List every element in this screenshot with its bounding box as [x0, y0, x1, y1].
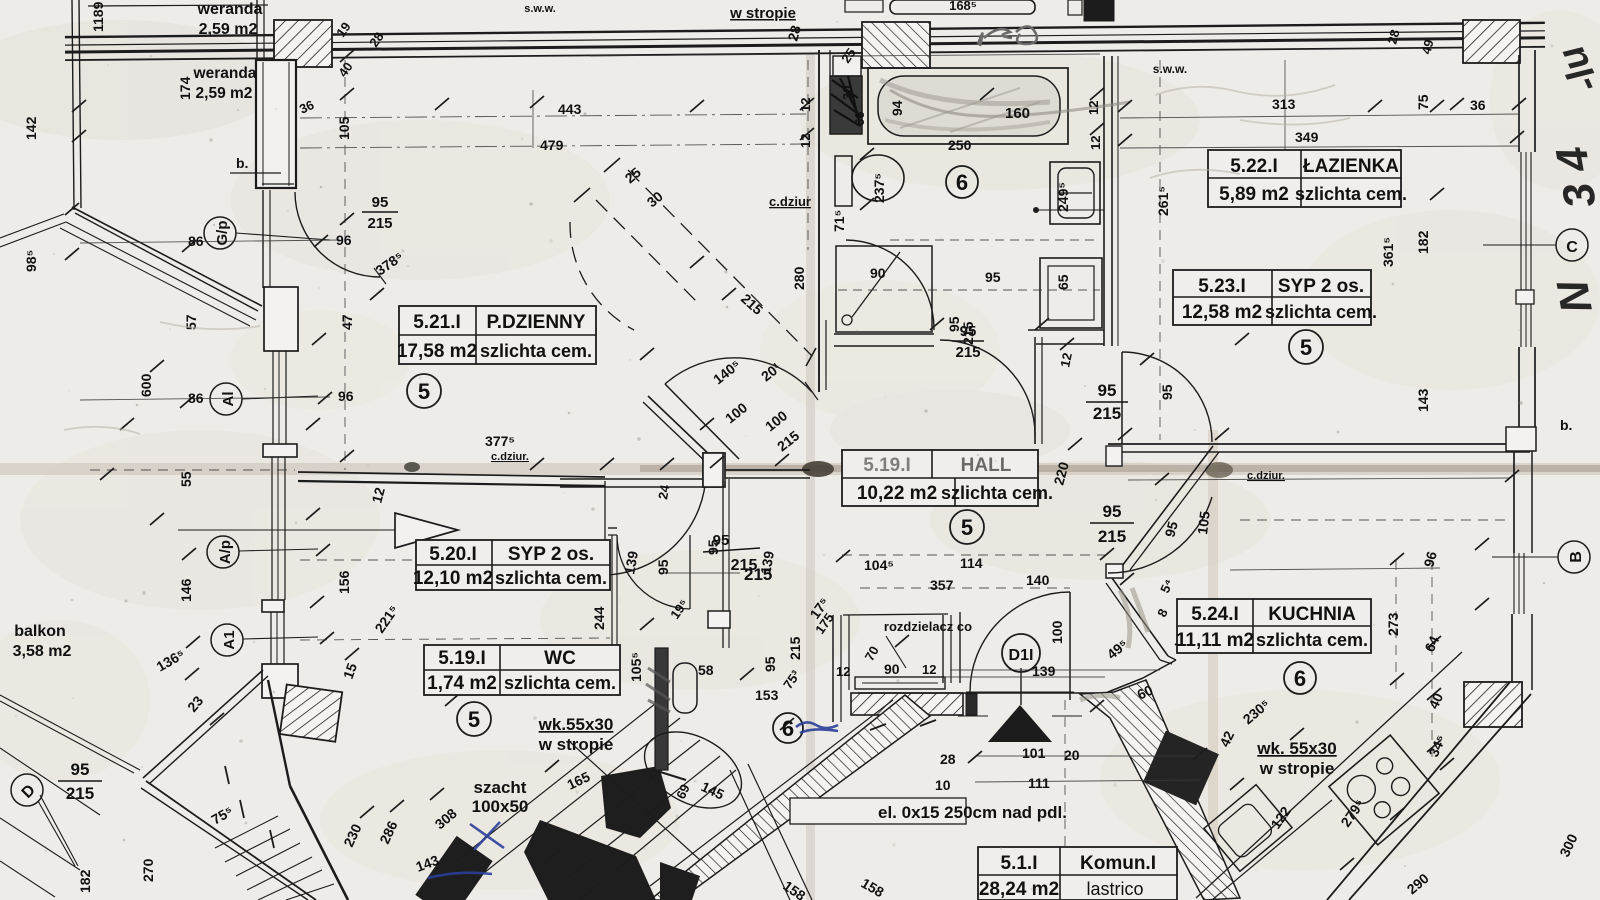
svg-text:5: 5 [468, 707, 480, 732]
svg-text:357: 357 [930, 577, 954, 593]
svg-text:c.dziur: c.dziur [769, 194, 811, 209]
svg-text:2,59 m2: 2,59 m2 [199, 21, 258, 38]
svg-text:140: 140 [1026, 572, 1050, 588]
svg-text:17,58 m2: 17,58 m2 [397, 341, 477, 362]
svg-text:95: 95 [1103, 502, 1122, 521]
svg-text:HALL: HALL [961, 455, 1012, 476]
svg-text:5,89 m2: 5,89 m2 [1219, 184, 1289, 205]
svg-text:600: 600 [138, 373, 154, 397]
svg-text:28: 28 [940, 751, 956, 767]
svg-text:168⁵: 168⁵ [949, 0, 977, 13]
svg-text:12: 12 [798, 134, 813, 148]
svg-text:249⁵: 249⁵ [1055, 182, 1071, 212]
svg-text:66: 66 [852, 112, 867, 126]
svg-text:B: B [1568, 551, 1585, 563]
svg-text:95: 95 [655, 559, 671, 575]
svg-text:139: 139 [1032, 663, 1056, 679]
svg-text:114: 114 [960, 555, 983, 571]
svg-text:96: 96 [336, 232, 352, 248]
svg-text:12,10 m2: 12,10 m2 [413, 568, 493, 589]
svg-text:270: 270 [140, 858, 156, 882]
svg-text:55: 55 [178, 471, 194, 487]
svg-text:weranda: weranda [197, 1, 263, 18]
svg-text:95: 95 [960, 323, 977, 340]
svg-text:s.w.w.: s.w.w. [524, 3, 556, 15]
svg-text:479: 479 [540, 137, 564, 153]
svg-text:20: 20 [1064, 747, 1080, 763]
svg-text:146: 146 [178, 578, 194, 602]
svg-text:5.19.I: 5.19.I [438, 648, 486, 669]
svg-text:G/p: G/p [214, 221, 231, 246]
svg-text:104⁵: 104⁵ [864, 557, 894, 573]
svg-text:105: 105 [336, 116, 352, 140]
svg-text:182: 182 [77, 869, 93, 893]
svg-text:11,11 m2: 11,11 m2 [1176, 630, 1254, 651]
svg-text:el. 0x15 250cm nad pdl.: el. 0x15 250cm nad pdl. [878, 803, 1067, 822]
svg-text:215: 215 [1093, 404, 1121, 423]
svg-text:361⁵: 361⁵ [1380, 237, 1396, 267]
svg-text:30: 30 [840, 86, 855, 100]
svg-text:215: 215 [1098, 527, 1126, 546]
svg-text:D1I: D1I [1009, 647, 1034, 664]
svg-text:Komun.I: Komun.I [1080, 853, 1156, 874]
svg-text:95: 95 [372, 194, 389, 211]
svg-text:250: 250 [948, 137, 972, 153]
svg-text:szlichta cem.: szlichta cem. [941, 483, 1053, 503]
svg-text:12: 12 [1086, 101, 1101, 115]
svg-text:wk.55x30: wk.55x30 [538, 715, 614, 734]
svg-text:Al: Al [220, 392, 237, 407]
svg-text:261⁵: 261⁵ [1155, 186, 1171, 216]
svg-text:349: 349 [1295, 129, 1319, 145]
svg-text:111: 111 [1028, 775, 1050, 791]
svg-text:5.21.I: 5.21.I [413, 312, 461, 333]
svg-text:142: 142 [23, 116, 39, 140]
svg-text:313: 313 [1272, 96, 1296, 112]
svg-text:12: 12 [836, 664, 850, 679]
svg-text:12: 12 [1088, 136, 1103, 150]
svg-text:100x50: 100x50 [472, 797, 529, 816]
svg-text:3,58 m2: 3,58 m2 [13, 643, 72, 660]
svg-text:174: 174 [177, 76, 193, 100]
svg-text:10,22 m2: 10,22 m2 [857, 483, 937, 504]
svg-text:98⁵: 98⁵ [23, 250, 39, 272]
svg-text:96: 96 [338, 388, 354, 404]
svg-text:153: 153 [755, 687, 779, 703]
svg-text:szlichta cem.: szlichta cem. [1256, 630, 1368, 650]
svg-text:s.w.w.: s.w.w. [1153, 62, 1187, 76]
svg-text:weranda: weranda [193, 65, 257, 82]
svg-text:156: 156 [336, 570, 352, 594]
svg-text:5: 5 [1300, 335, 1312, 360]
svg-text:C: C [1566, 239, 1578, 256]
svg-text:5: 5 [961, 515, 973, 540]
svg-text:95: 95 [985, 269, 1001, 285]
svg-text:szacht: szacht [474, 778, 527, 797]
svg-text:101: 101 [1022, 745, 1046, 761]
svg-text:szlichta cem.: szlichta cem. [495, 568, 607, 588]
svg-text:6: 6 [1294, 666, 1306, 691]
svg-text:143: 143 [1415, 388, 1431, 412]
svg-text:szlichta cem.: szlichta cem. [504, 673, 616, 693]
svg-text:b.: b. [1560, 417, 1572, 433]
svg-text:ŁAZIENKA: ŁAZIENKA [1303, 156, 1399, 177]
svg-text:47: 47 [339, 314, 355, 330]
svg-text:182: 182 [1415, 230, 1431, 254]
svg-text:10: 10 [935, 777, 951, 793]
svg-text:c.dziur.: c.dziur. [491, 451, 529, 463]
svg-text:215: 215 [731, 557, 758, 574]
svg-text:w stropie: w stropie [1259, 759, 1335, 778]
svg-text:12: 12 [1057, 351, 1075, 368]
svg-text:b.: b. [236, 155, 248, 171]
svg-text:5.23.I: 5.23.I [1198, 276, 1246, 297]
svg-text:5: 5 [418, 379, 430, 404]
svg-text:1,74 m2: 1,74 m2 [427, 673, 497, 694]
svg-text:160: 160 [1005, 105, 1030, 122]
svg-text:A/p: A/p [217, 540, 234, 564]
svg-text:2,59 m2: 2,59 m2 [196, 85, 253, 102]
svg-text:377⁵: 377⁵ [485, 433, 515, 449]
svg-text:12,58 m2: 12,58 m2 [1182, 302, 1262, 323]
svg-text:90: 90 [870, 265, 886, 281]
svg-text:szlichta cem.: szlichta cem. [1265, 302, 1377, 322]
svg-text:A1: A1 [221, 630, 238, 649]
svg-text:86: 86 [188, 233, 204, 249]
svg-text:36: 36 [1470, 97, 1486, 113]
svg-text:12: 12 [798, 98, 813, 112]
svg-text:rozdzielacz co: rozdzielacz co [884, 619, 972, 634]
svg-text:SYP 2 os.: SYP 2 os. [1278, 276, 1364, 297]
svg-text:75: 75 [1415, 94, 1431, 110]
svg-text:KUCHNIA: KUCHNIA [1268, 604, 1356, 625]
svg-text:SYP 2 os.: SYP 2 os. [508, 544, 594, 565]
svg-text:1189: 1189 [90, 1, 106, 32]
svg-text:6: 6 [956, 170, 968, 195]
svg-text:5.19.I: 5.19.I [863, 455, 911, 476]
svg-text:58: 58 [698, 662, 714, 678]
svg-text:215: 215 [66, 784, 94, 803]
svg-text:w stropie: w stropie [729, 5, 796, 22]
svg-text:balkon: balkon [14, 623, 66, 640]
svg-text:WC: WC [544, 648, 576, 669]
svg-text:3 4: 3 4 [1547, 143, 1600, 212]
svg-text:12: 12 [922, 662, 936, 677]
svg-text:215: 215 [787, 636, 803, 660]
svg-text:5.1.I: 5.1.I [1001, 853, 1038, 874]
svg-text:65: 65 [1055, 274, 1071, 290]
svg-text:105⁵: 105⁵ [628, 652, 644, 682]
svg-text:95: 95 [762, 656, 778, 672]
svg-text:95: 95 [1159, 384, 1175, 400]
svg-text:443: 443 [558, 101, 582, 117]
svg-text:71⁵: 71⁵ [831, 210, 847, 232]
svg-text:237⁵: 237⁵ [871, 173, 887, 203]
svg-text:244: 244 [591, 606, 607, 630]
svg-text:w stropie: w stropie [538, 735, 614, 754]
svg-text:280: 280 [791, 266, 807, 290]
svg-text:P.DZIENNY: P.DZIENNY [487, 312, 586, 333]
svg-text:5.20.I: 5.20.I [429, 544, 477, 565]
svg-text:lastrico: lastrico [1086, 879, 1143, 899]
svg-text:6: 6 [782, 716, 794, 741]
svg-text:szlichta cem.: szlichta cem. [1295, 184, 1407, 204]
svg-text:szlichta cem.: szlichta cem. [480, 341, 592, 361]
svg-text:95: 95 [1098, 381, 1117, 400]
svg-text:5.24.I: 5.24.I [1191, 604, 1239, 625]
svg-text:28,24 m2: 28,24 m2 [979, 879, 1059, 900]
svg-text:273: 273 [1385, 612, 1401, 636]
svg-text:95: 95 [71, 760, 90, 779]
svg-text:94: 94 [889, 100, 905, 116]
svg-text:c.dziur.: c.dziur. [1247, 470, 1285, 482]
svg-text:100: 100 [1049, 620, 1065, 644]
svg-text:95: 95 [713, 532, 730, 549]
svg-text:105: 105 [1194, 510, 1213, 535]
svg-text:wk. 55x30: wk. 55x30 [1256, 739, 1336, 758]
svg-text:90: 90 [884, 661, 900, 677]
svg-text:215: 215 [367, 215, 392, 232]
svg-text:215: 215 [955, 344, 980, 361]
